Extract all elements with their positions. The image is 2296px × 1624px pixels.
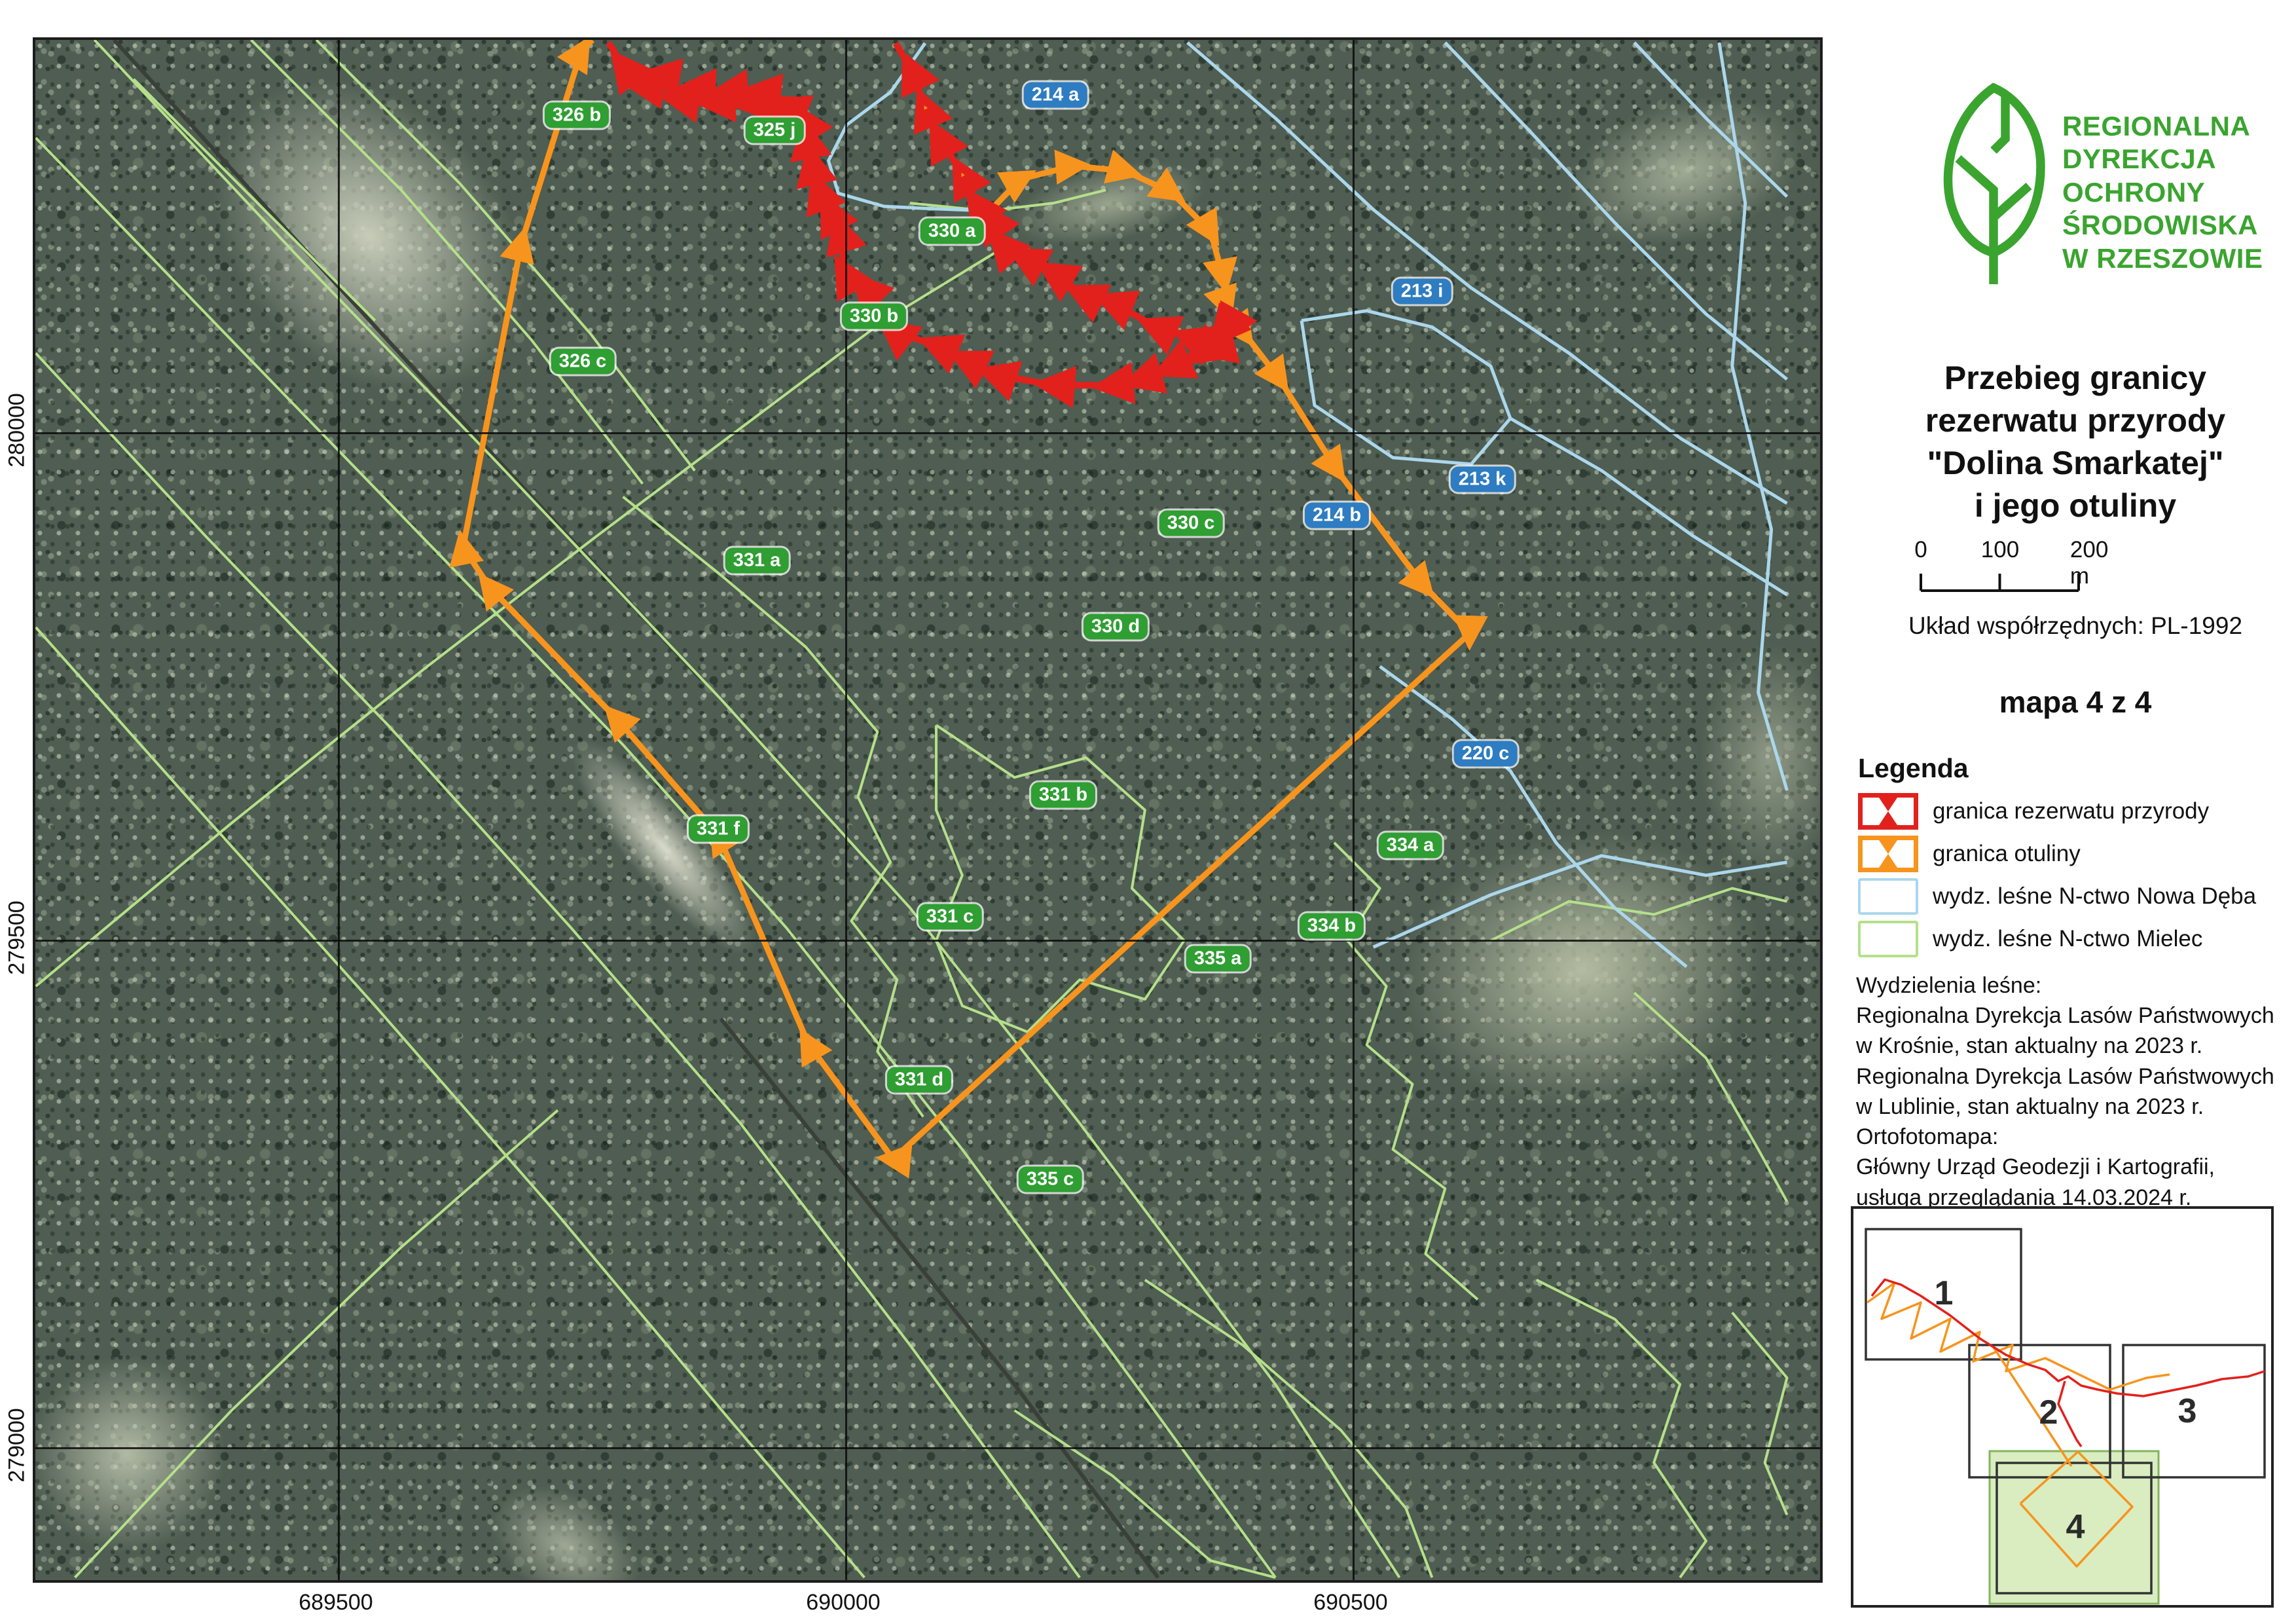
compartment-label-330-d: 330 d (1084, 614, 1148, 640)
compartment-label-330-b: 330 b (842, 304, 906, 329)
grid-line-horizontal (35, 432, 1820, 434)
grid-line-vertical (338, 40, 340, 1580)
mielec-subdivision-line (1634, 993, 1787, 1202)
legend-heading: Legenda (1858, 753, 2296, 784)
map-canvas[interactable]: 326 b325 j214 a330 a213 i330 b326 c213 k… (33, 37, 1823, 1583)
legend-item-nowa-deba: wydz. leśne N-ctwo Nowa Dęba (1858, 878, 2296, 915)
northing-label: 280000 (5, 393, 30, 467)
grid-line-vertical (1353, 40, 1355, 1580)
buffer-boundary-swatch-icon (1858, 836, 1918, 872)
scale-bar: 0 100 200 m (1899, 537, 2121, 609)
nowa-deba-subdivision-line (1302, 311, 1510, 464)
compartment-label-331-f: 331 f (689, 817, 748, 842)
compartment-label-335-c: 335 c (1019, 1167, 1082, 1192)
easting-label: 689500 (299, 1590, 373, 1615)
sheet-number-1: 1 (1935, 1274, 1954, 1313)
data-sources-note: Wydzielenia leśne: Regionalna Dyrekcja L… (1856, 970, 2296, 1213)
sheet-number-2: 2 (2039, 1393, 2058, 1432)
mielec-subdivision-line (1537, 1280, 1706, 1578)
nowa-deba-subdivision-line (1719, 43, 1787, 790)
compartment-label-334-a: 334 a (1379, 833, 1442, 858)
map-sheet: 326 b325 j214 a330 a213 i330 b326 c213 k… (0, 0, 2296, 1624)
sheet-number-3: 3 (2178, 1392, 2197, 1431)
compartment-label-213-k: 213 k (1451, 467, 1514, 492)
compartment-label-331-a: 331 a (725, 548, 789, 574)
boundary-layers (35, 40, 1820, 1580)
forest-road-line (721, 1019, 1158, 1578)
northing-label: 279000 (5, 1408, 30, 1482)
easting-label: 690000 (806, 1590, 880, 1615)
legend-item-buffer: granica otuliny (1858, 836, 2296, 872)
grid-line-horizontal (35, 1447, 1820, 1449)
mielec-subdivision-line (36, 138, 1276, 1578)
nowa-deba-subdivision-line (1634, 43, 1787, 196)
mielec-subdivision-line (36, 353, 1080, 1578)
mielec-subdivision-line (1015, 1411, 1276, 1578)
compartment-label-325-j: 325 j (746, 118, 804, 143)
org-name: REGIONALNA DYREKCJA OCHRONY ŚRODOWISKA W… (2062, 110, 2263, 275)
scale-0: 0 (1914, 537, 1927, 563)
mielec-subdivision-line (1491, 889, 1787, 941)
compartment-label-214-a: 214 a (1024, 83, 1087, 108)
mielec-subdivision-line (1145, 1280, 1432, 1578)
mielec-subdivision-line (75, 1110, 557, 1578)
overview-reserve-line (2058, 1381, 2081, 1447)
mielec-subdivision-line (1732, 1312, 1787, 1515)
compartment-label-213-i: 213 i (1393, 279, 1451, 304)
compartment-label-214-b: 214 b (1305, 503, 1369, 528)
easting-label: 690500 (1313, 1590, 1387, 1615)
mielec-subdivision-line (316, 40, 695, 471)
sheet-index-overview[interactable]: 1234 (1851, 1206, 2274, 1608)
compartment-label-330-c: 330 c (1159, 511, 1223, 536)
mielec-swatch-icon (1858, 921, 1918, 957)
compartment-label-335-a: 335 a (1186, 946, 1250, 972)
compartment-label-331-d: 331 d (887, 1067, 951, 1093)
overview-reserve-line (1872, 1280, 2265, 1396)
compartment-label-331-c: 331 c (919, 904, 982, 930)
mielec-subdivision-line (94, 40, 1399, 1578)
scale-100: 100 (1981, 537, 2019, 563)
mielec-subdivision-line (623, 497, 923, 1117)
legend: Legenda granica rezerwatu przyrody grani… (1858, 753, 2296, 963)
nowa-deba-subdivision-line (1380, 667, 1686, 967)
legend-item-reserve: granica rezerwatu przyrody (1858, 793, 2296, 830)
reserve-boundary-swatch-icon (1858, 793, 1918, 830)
compartment-label-326-c: 326 c (551, 349, 615, 375)
compartment-label-331-b: 331 b (1031, 783, 1095, 808)
map-sheet-number: mapa 4 z 4 (1853, 684, 2296, 720)
compartment-label-220-c: 220 c (1454, 741, 1518, 767)
compartment-label-330-a: 330 a (920, 219, 984, 244)
nowa-deba-swatch-icon (1858, 878, 1918, 915)
northing-label: 279500 (5, 900, 30, 974)
compartment-label-334-b: 334 b (1300, 913, 1364, 939)
grid-line-horizontal (35, 940, 1820, 942)
mielec-subdivision-line (936, 725, 1184, 1031)
compartment-label-326-b: 326 b (545, 103, 609, 128)
legend-item-mielec: wydz. leśne N-ctwo Mielec (1858, 921, 2296, 957)
map-title: Przebieg granicy rezerwatu przyrody "Dol… (1853, 357, 2296, 527)
sheet-number-4: 4 (2066, 1507, 2085, 1547)
coordinate-system-note: Układ współrzędnych: PL-1992 (1853, 612, 2296, 640)
grid-line-vertical (845, 40, 847, 1580)
nowa-deba-subdivision-line (1510, 418, 1787, 595)
nowa-deba-subdivision-line (1188, 43, 1787, 504)
rdos-leaf-logo-icon (1935, 72, 2052, 288)
mielec-subdivision-line (36, 627, 865, 1578)
